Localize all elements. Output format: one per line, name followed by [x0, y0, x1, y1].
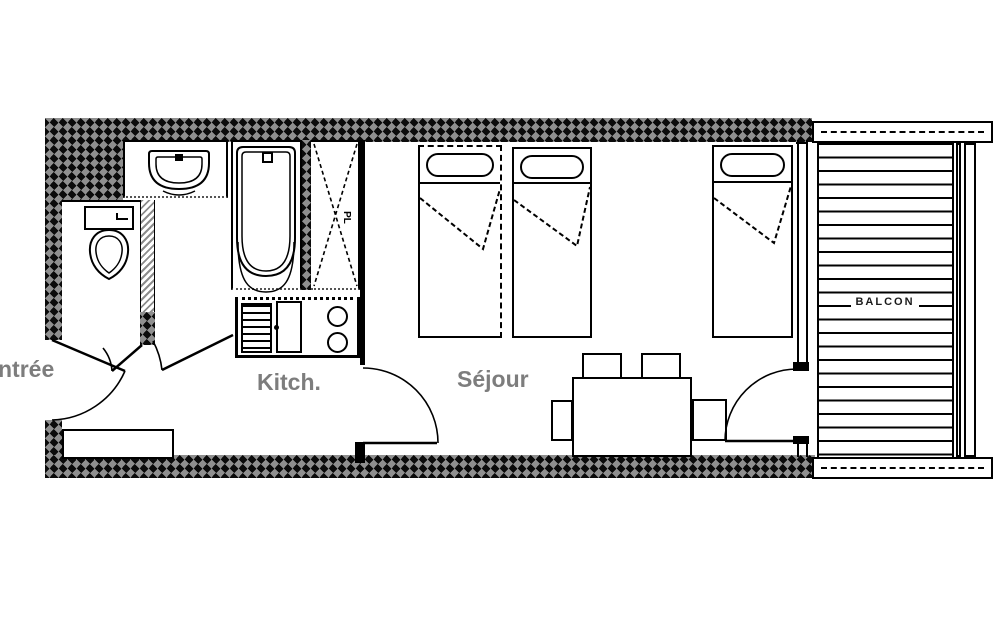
label-kitchen: Kitch. — [257, 369, 321, 396]
wall-bath-closet-divider — [302, 140, 311, 290]
toilet-tank-icon — [84, 206, 134, 230]
pillow-icon — [426, 153, 494, 177]
toilet-flush-icon — [116, 213, 128, 220]
entry-bench — [62, 429, 174, 459]
rail-centerline — [821, 131, 984, 133]
label-balcony: BALCON — [851, 296, 919, 308]
wc-door-leaf — [112, 345, 142, 371]
balcony-bottom-rail — [812, 457, 993, 479]
bed-headline — [714, 181, 791, 183]
label-entrance: ntrée — [0, 356, 54, 383]
bathroom-door-arc — [153, 341, 162, 370]
wall-door-stub — [138, 312, 155, 345]
pillow-icon — [520, 155, 584, 179]
bed-2 — [512, 147, 592, 338]
pillow-icon — [720, 153, 785, 177]
bed-headline — [514, 182, 590, 184]
stove-burner-icon — [327, 332, 348, 353]
washbasin-room — [123, 140, 228, 198]
closet-room — [311, 140, 360, 290]
floor-plan: ntrée Kitch. Séjour BALCON PL — [0, 0, 1000, 635]
kitchen-door-arc — [363, 368, 438, 443]
entrance-door-arc — [52, 371, 125, 420]
bed-1 — [418, 145, 502, 338]
wall-closet-right — [360, 140, 365, 365]
wc-door-arc — [103, 348, 112, 371]
chair-icon — [692, 399, 727, 441]
dining-table — [572, 377, 692, 457]
bathroom-door-leaf — [162, 335, 233, 370]
chair-icon — [641, 353, 681, 379]
chair-icon — [551, 400, 573, 441]
wall-top — [45, 118, 812, 142]
balcony-door-arc — [725, 369, 797, 441]
bed-headline — [420, 182, 500, 184]
balcony-post-outer — [964, 143, 976, 457]
kitchen-sink-icon — [276, 301, 302, 353]
bathtub-room — [231, 140, 302, 290]
bed-3 — [712, 145, 793, 338]
kitchen-drainboard-icon — [241, 303, 272, 353]
balcony-post-inner — [956, 143, 961, 457]
window-wall — [798, 140, 807, 457]
label-living-room: Séjour — [457, 366, 529, 393]
chair-icon — [582, 353, 622, 379]
stove-burner-icon — [327, 306, 348, 327]
balcony-top-rail — [812, 121, 993, 143]
label-closet: PL — [341, 211, 352, 224]
wall-left-upper — [45, 118, 62, 340]
rail-centerline — [821, 467, 984, 469]
kitchen-sink-knob-icon — [274, 325, 279, 330]
